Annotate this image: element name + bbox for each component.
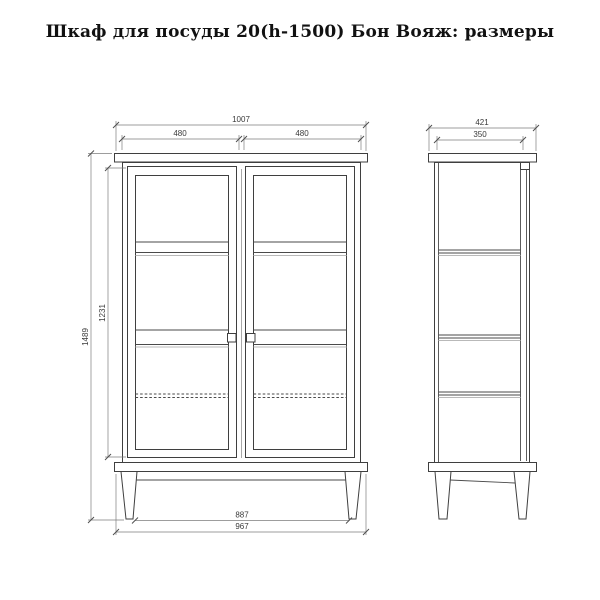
dim-label-depth-total: 421 xyxy=(475,118,489,127)
front-door-right-glass xyxy=(254,176,347,450)
side-leg-rear xyxy=(514,472,530,520)
side-top-board xyxy=(429,154,537,163)
dim-label-door-right: 480 xyxy=(295,129,309,138)
door-handle-right xyxy=(247,334,256,343)
dim-label-height-total: 1489 xyxy=(81,328,90,346)
side-door-top-edge xyxy=(521,163,530,170)
dim-label-base-inner: 887 xyxy=(235,511,249,520)
front-top-board xyxy=(115,154,368,163)
side-view xyxy=(429,154,537,520)
side-body xyxy=(435,163,530,463)
front-door-left-glass xyxy=(136,176,229,450)
door-handle-left xyxy=(228,334,237,343)
front-leg-left xyxy=(121,472,137,520)
front-bottom-board xyxy=(115,463,368,472)
drawing-canvas: 1007 480 480 1489 1231 887 967 xyxy=(0,0,600,600)
dim-front-door-left: 480 xyxy=(119,129,242,150)
dim-front-width-total: 1007 xyxy=(113,115,369,151)
dim-front-base-outer: 967 xyxy=(113,474,369,535)
dim-label-depth-body: 350 xyxy=(473,130,487,139)
dim-front-door-right: 480 xyxy=(241,129,364,150)
front-leg-right xyxy=(345,472,361,520)
dim-label-base-outer: 967 xyxy=(235,522,249,531)
front-view xyxy=(115,154,368,520)
dim-side-depth-body: 350 xyxy=(434,130,526,150)
side-leg-front xyxy=(435,472,451,520)
dim-label-door-height: 1231 xyxy=(98,304,107,322)
side-bottom-board xyxy=(429,463,537,472)
dim-front-door-height: 1231 xyxy=(98,165,126,460)
dim-label-door-left: 480 xyxy=(173,129,187,138)
dim-label-width-total: 1007 xyxy=(232,115,250,124)
side-leg-rail xyxy=(450,480,515,483)
